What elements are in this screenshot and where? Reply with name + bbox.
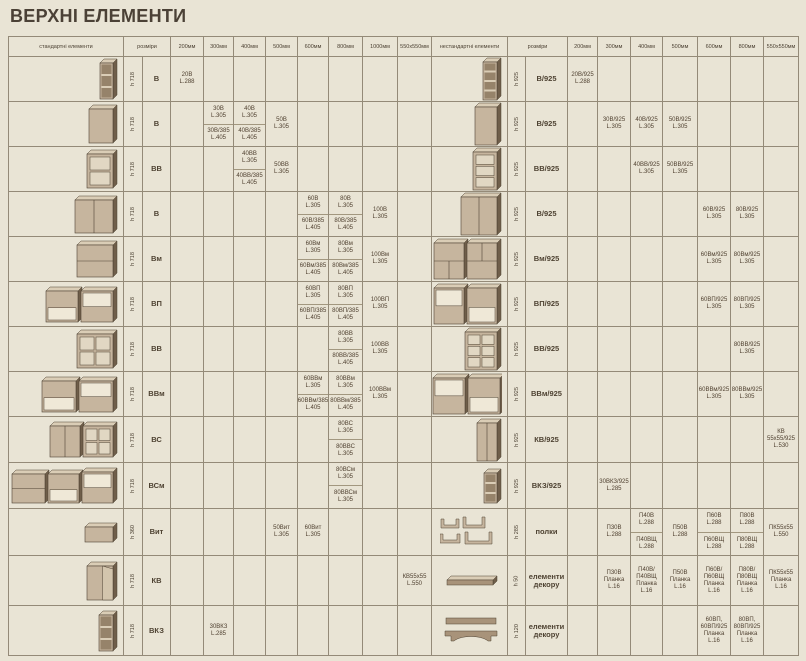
glass-6-tall-illustration — [464, 327, 502, 371]
col-header-nonstandard-elements: нестандартні елементи — [432, 37, 508, 57]
illustration-cell — [432, 372, 508, 417]
value-cell — [171, 372, 204, 417]
element-code: КВ — [143, 556, 171, 606]
value-cell — [631, 372, 663, 417]
value-cell — [298, 327, 329, 372]
value-cell: 60ВмL.30560Вм/385L.405 — [298, 237, 329, 282]
value-cell — [764, 192, 799, 237]
value-entry: П50ВПланкаL.16 — [663, 556, 697, 605]
value-cell: 60ВВм/925L.305 — [698, 372, 731, 417]
value-entry: П80ВЩL.288 — [731, 532, 763, 556]
corner-illustration — [86, 561, 118, 601]
value-cell — [568, 463, 598, 509]
illustration-cell — [9, 147, 124, 192]
element-code: ВСм — [143, 463, 171, 509]
col-header-right-600мм: 600мм — [698, 37, 731, 57]
element-code: ВКЗ/925 — [526, 463, 568, 509]
value-entry: 40ВВ/385L.405 — [234, 169, 265, 192]
value-entry: 20ВL.288 — [171, 57, 203, 101]
illustration-cell — [9, 192, 124, 237]
value-entry: 60ВП/385L.405 — [298, 304, 328, 327]
value-cell — [731, 463, 764, 509]
height-label: h 925 — [508, 237, 526, 282]
value-cell: 30ВL.30530В/385L.405 — [204, 102, 234, 147]
col-header-left-600мм: 600мм — [298, 37, 329, 57]
value-cell: 50ВВL.305 — [266, 147, 298, 192]
value-cell — [764, 147, 799, 192]
illustration-cell — [9, 372, 124, 417]
value-cell: 100ВL.305 — [363, 192, 398, 237]
shelf-set-illustration — [440, 515, 502, 549]
value-cell — [171, 509, 204, 556]
value-cell — [329, 509, 363, 556]
value-entry: 60ВмL.305 — [298, 237, 328, 259]
element-code: В — [143, 192, 171, 237]
value-entry: 60Вм/925L.305 — [698, 237, 730, 281]
illustration-cell — [9, 556, 124, 606]
value-entry: 30ВКЗ/925L.285 — [598, 463, 630, 508]
niche-flap-pair-illustration — [41, 376, 118, 413]
value-cell: 40ВL.30540В/385L.405 — [234, 102, 266, 147]
value-cell — [764, 102, 799, 147]
col-header-left-500мм: 500мм — [266, 37, 298, 57]
glass-4-illustration — [76, 329, 118, 369]
catalog-row: h 718ВВ80ВВL.30580ВВ/385L.405100ВВL.305h… — [9, 327, 799, 372]
value-cell — [698, 327, 731, 372]
value-entry: 80ВмL.305 — [329, 237, 362, 259]
value-cell — [568, 327, 598, 372]
value-entry: 30В/925L.305 — [598, 102, 630, 146]
value-cell — [298, 102, 329, 147]
value-cell — [631, 463, 663, 509]
shelf-3-illustration — [99, 58, 118, 100]
value-cell — [398, 57, 432, 102]
height-label: h 718 — [124, 282, 143, 327]
value-cell — [171, 463, 204, 509]
value-entry: 80ВВL.305 — [329, 327, 362, 349]
value-cell: П80ВL.288П80ВЩL.288 — [731, 509, 764, 556]
value-cell — [598, 417, 631, 463]
niche-flap-pair-tall-illustration — [432, 373, 502, 415]
value-entry: П40ВЩL.288 — [631, 532, 662, 556]
value-entry: П30ВПланкаL.16 — [598, 556, 630, 605]
value-cell: 80ВмL.30580Вм/385L.405 — [329, 237, 363, 282]
value-cell — [663, 417, 698, 463]
value-entry: 80ВВм/925L.305 — [731, 372, 763, 416]
value-cell: 40В/925L.305 — [631, 102, 663, 147]
illustration-cell — [9, 57, 124, 102]
height-label: h 925 — [508, 192, 526, 237]
catalog-row: h 718ВВ40ВВL.30540ВВ/385L.40550ВВL.305h … — [9, 147, 799, 192]
value-entry: 20В/925L.288 — [568, 57, 597, 101]
element-code: ВП/925 — [526, 282, 568, 327]
value-entry: П50ВL.288 — [663, 509, 697, 555]
height-label: h 718 — [124, 463, 143, 509]
value-cell — [568, 556, 598, 606]
value-entry: П40В/П40ВЩПланкаL.16 — [631, 556, 662, 605]
value-entry: КВ55х55L.550 — [398, 556, 431, 605]
value-entry: 60Вм/385L.405 — [298, 259, 328, 282]
value-cell — [631, 606, 663, 656]
value-cell — [568, 192, 598, 237]
value-entry: П60ВL.288 — [698, 509, 730, 532]
illustration-cell — [432, 102, 508, 147]
value-cell — [204, 327, 234, 372]
value-entry: 80ВВм/385L.405 — [329, 394, 362, 417]
value-cell — [234, 282, 266, 327]
value-cell — [598, 606, 631, 656]
value-cell — [171, 147, 204, 192]
value-cell — [663, 463, 698, 509]
catalog-row: h 718ВКЗ30ВКЗL.285h 120елементи декору60… — [9, 606, 799, 656]
value-cell — [266, 327, 298, 372]
value-cell — [204, 463, 234, 509]
element-code: елементи декору — [526, 606, 568, 656]
value-cell — [398, 147, 432, 192]
value-entry: 60ВП,60ВП/925ПланкаL.16 — [698, 606, 730, 655]
height-label: h 120 — [508, 606, 526, 656]
value-cell: 80ВВ/925L.305 — [731, 327, 764, 372]
value-cell: ПК55х55ПланкаL.16 — [764, 556, 799, 606]
value-entry: 100ВL.305 — [363, 192, 397, 236]
value-cell — [204, 192, 234, 237]
value-cell: КВ55х55L.550 — [398, 556, 432, 606]
value-entry: 100ВВL.305 — [363, 327, 397, 371]
value-cell — [234, 327, 266, 372]
value-cell — [266, 282, 298, 327]
door-2-tall-illustration — [460, 192, 502, 236]
value-cell: 60Вм/925L.305 — [698, 237, 731, 282]
element-code: ВС — [143, 417, 171, 463]
element-code: В/925 — [526, 192, 568, 237]
value-entry: 80Вм/385L.405 — [329, 259, 362, 282]
height-label: h 718 — [124, 102, 143, 147]
value-cell — [568, 147, 598, 192]
value-cell — [631, 57, 663, 102]
catalog-row: h 360Вит50ВитL.30560ВитL.305h 285полкиП3… — [9, 509, 799, 556]
catalog-row: h 718В30ВL.30530В/385L.40540ВL.30540В/38… — [9, 102, 799, 147]
value-cell — [363, 147, 398, 192]
value-cell — [298, 556, 329, 606]
illustration-cell — [9, 237, 124, 282]
col-header-left-400мм: 400мм — [234, 37, 266, 57]
col-header-left-1000мм: 1000мм — [363, 37, 398, 57]
value-cell — [298, 417, 329, 463]
catalog-row: h 718В20ВL.288h 925В/92520В/925L.288 — [9, 57, 799, 102]
value-cell — [204, 147, 234, 192]
element-code: ВВ — [143, 147, 171, 192]
element-code: ВВ/925 — [526, 147, 568, 192]
col-header-sizes-left: розміри — [124, 37, 171, 57]
value-cell — [363, 606, 398, 656]
illustration-cell — [432, 147, 508, 192]
element-code: ВВ — [143, 327, 171, 372]
illustration-cell — [9, 282, 124, 327]
triple-combo-illustration — [11, 467, 118, 504]
value-entry: 60ВВмL.305 — [298, 372, 328, 394]
value-cell: П40ВL.288П40ВЩL.288 — [631, 509, 663, 556]
value-entry: 50ВВL.305 — [266, 147, 297, 191]
height-label: h 718 — [124, 57, 143, 102]
height-label: h 925 — [508, 327, 526, 372]
value-cell — [764, 463, 799, 509]
value-cell — [398, 417, 432, 463]
value-cell: 60ВП/925L.305 — [698, 282, 731, 327]
illustration-cell — [432, 327, 508, 372]
height-label: h 50 — [508, 556, 526, 606]
height-label: h 925 — [508, 147, 526, 192]
value-entry: 40ВВ/925L.305 — [631, 147, 662, 191]
value-cell — [266, 606, 298, 656]
value-cell: 100ВВмL.305 — [363, 372, 398, 417]
value-entry: П80ВL.288 — [731, 509, 763, 532]
value-cell — [363, 57, 398, 102]
value-cell — [398, 509, 432, 556]
illustration-cell — [432, 606, 508, 656]
value-cell: П30ВL.288 — [598, 509, 631, 556]
value-cell — [764, 372, 799, 417]
height-label: h 285 — [508, 509, 526, 556]
value-cell — [266, 417, 298, 463]
value-entry: П40ВL.288 — [631, 509, 662, 532]
value-entry: 80ВВ/385L.405 — [329, 349, 362, 372]
value-cell: 40ВВL.30540ВВ/385L.405 — [234, 147, 266, 192]
value-entry: 60ВПL.305 — [298, 282, 328, 304]
value-cell — [731, 417, 764, 463]
door-1-illustration — [88, 104, 118, 144]
value-entry: П30ВL.288 — [598, 509, 630, 555]
value-cell — [398, 192, 432, 237]
value-entry: 80ВП,80ВП/925ПланкаL.16 — [731, 606, 763, 655]
illustration-cell — [9, 417, 124, 463]
door-glass-pair-illustration — [49, 421, 118, 458]
value-cell: 80ВВм/925L.305 — [731, 372, 764, 417]
value-cell — [234, 463, 266, 509]
value-cell — [598, 57, 631, 102]
value-cell: 80ВL.30580В/385L.405 — [329, 192, 363, 237]
element-code: В/925 — [526, 57, 568, 102]
value-entry: 80ВВмL.305 — [329, 372, 362, 394]
value-cell — [598, 237, 631, 282]
value-cell — [363, 102, 398, 147]
element-code: В — [143, 57, 171, 102]
value-cell — [631, 327, 663, 372]
value-cell — [764, 327, 799, 372]
col-header-left-550х550мм: 550х550мм — [398, 37, 432, 57]
element-code: КВ/925 — [526, 417, 568, 463]
value-cell — [568, 102, 598, 147]
value-cell — [171, 606, 204, 656]
value-cell — [764, 606, 799, 656]
value-cell: 100ВПL.305 — [363, 282, 398, 327]
value-cell — [631, 237, 663, 282]
value-cell: 60ВВмL.30560ВВм/385L.405 — [298, 372, 329, 417]
value-entry: 100ВмL.305 — [363, 237, 397, 281]
illustration-cell — [432, 509, 508, 556]
catalog-row: h 718КВКВ55х55L.550h 50елементи декоруП3… — [9, 556, 799, 606]
value-cell: 50ВВ/925L.305 — [663, 147, 698, 192]
value-cell: П50ВL.288 — [663, 509, 698, 556]
value-entry: 60ВП/925L.305 — [698, 282, 730, 326]
value-cell — [266, 57, 298, 102]
value-cell — [398, 372, 432, 417]
value-cell: 80В/925L.305 — [731, 192, 764, 237]
value-cell — [204, 282, 234, 327]
value-entry: ПК55х55ПланкаL.16 — [764, 556, 798, 605]
value-cell: П30ВПланкаL.16 — [598, 556, 631, 606]
value-entry: 80ВП/925L.305 — [731, 282, 763, 326]
value-entry: 60ВитL.305 — [298, 509, 328, 555]
catalog-row: h 718В60ВL.30560В/385L.40580ВL.30580В/38… — [9, 192, 799, 237]
value-cell: 80ВВL.30580ВВ/385L.405 — [329, 327, 363, 372]
value-cell — [266, 463, 298, 509]
value-cell — [764, 57, 799, 102]
flap-pair-tall-illustration — [433, 238, 502, 280]
value-cell — [266, 556, 298, 606]
value-cell: КВ55х55/925L.530 — [764, 417, 799, 463]
value-cell — [204, 372, 234, 417]
glass-2-illustration — [86, 149, 118, 189]
value-cell — [204, 57, 234, 102]
value-cell — [234, 509, 266, 556]
value-cell — [663, 57, 698, 102]
value-cell: 80ВПL.30580ВП/385L.405 — [329, 282, 363, 327]
value-cell: П50ВПланкаL.16 — [663, 556, 698, 606]
illustration-cell — [9, 102, 124, 147]
value-cell — [398, 463, 432, 509]
col-header-right-400мм: 400мм — [631, 37, 663, 57]
illustration-cell — [9, 327, 124, 372]
element-code: елементи декору — [526, 556, 568, 606]
cornice-pair-illustration — [444, 615, 502, 647]
value-cell — [204, 556, 234, 606]
height-label: h 718 — [124, 237, 143, 282]
element-code: В/925 — [526, 102, 568, 147]
value-cell — [731, 147, 764, 192]
value-cell: 60ВL.30560В/385L.405 — [298, 192, 329, 237]
value-entry: 80Вм/925L.305 — [731, 237, 763, 281]
value-cell — [329, 147, 363, 192]
illustration-cell — [432, 463, 508, 509]
height-label: h 925 — [508, 57, 526, 102]
value-cell — [631, 192, 663, 237]
value-cell — [663, 282, 698, 327]
value-entry: 80ВПL.305 — [329, 282, 362, 304]
value-entry: П80В/П80ВЩПланкаL.16 — [731, 556, 763, 605]
value-cell — [698, 57, 731, 102]
value-cell — [234, 192, 266, 237]
value-entry: 80ВП/385L.405 — [329, 304, 362, 327]
value-cell: П40В/П40ВЩПланкаL.16 — [631, 556, 663, 606]
value-cell — [568, 237, 598, 282]
value-cell — [171, 102, 204, 147]
door-1-tall-illustration — [474, 102, 502, 146]
value-cell — [204, 509, 234, 556]
value-cell — [398, 606, 432, 656]
value-cell — [731, 102, 764, 147]
value-cell: 80ВВмL.30580ВВм/385L.405 — [329, 372, 363, 417]
value-cell — [568, 372, 598, 417]
value-cell — [171, 327, 204, 372]
height-label: h 718 — [124, 417, 143, 463]
element-code: ВП — [143, 282, 171, 327]
value-cell — [363, 417, 398, 463]
element-code: Вм/925 — [526, 237, 568, 282]
value-cell: 50В/925L.305 — [663, 102, 698, 147]
value-cell — [631, 417, 663, 463]
value-cell — [568, 417, 598, 463]
value-cell: П60В/П60ВЩПланкаL.16 — [698, 556, 731, 606]
height-label: h 718 — [124, 372, 143, 417]
element-code: В — [143, 102, 171, 147]
value-cell — [298, 463, 329, 509]
value-cell — [698, 102, 731, 147]
height-label: h 925 — [508, 463, 526, 509]
value-entry: 40ВL.305 — [234, 102, 265, 124]
col-header-right-300мм: 300мм — [598, 37, 631, 57]
value-cell — [204, 237, 234, 282]
col-header-left-300мм: 300мм — [204, 37, 234, 57]
niche-pair-tall-illustration — [433, 283, 502, 325]
value-cell — [663, 237, 698, 282]
value-cell — [171, 556, 204, 606]
col-header-right-550х550мм: 550х550мм — [764, 37, 799, 57]
value-cell: П80В/П80ВЩПланкаL.16 — [731, 556, 764, 606]
illustration-cell — [9, 509, 124, 556]
catalog-table: стандартні елементирозміри200мм300мм400м… — [8, 36, 799, 656]
illustration-cell — [9, 606, 124, 656]
col-header-right-500мм: 500мм — [663, 37, 698, 57]
element-code: ВВ/925 — [526, 327, 568, 372]
value-cell — [171, 237, 204, 282]
value-entry: 80ВВ/925L.305 — [731, 327, 763, 371]
height-label: h 925 — [508, 372, 526, 417]
value-cell — [663, 606, 698, 656]
value-cell — [171, 192, 204, 237]
value-cell: 100ВмL.305 — [363, 237, 398, 282]
value-cell: 80ВП,80ВП/925ПланкаL.16 — [731, 606, 764, 656]
value-cell — [598, 192, 631, 237]
height-label: h 718 — [124, 556, 143, 606]
col-header-sizes-right: розміри — [508, 37, 568, 57]
value-cell: 30ВКЗL.285 — [204, 606, 234, 656]
element-code: ВВм — [143, 372, 171, 417]
value-cell — [329, 57, 363, 102]
value-entry: 80ВСL.305 — [329, 417, 362, 439]
value-cell — [764, 237, 799, 282]
value-entry: 80ВВСмL.305 — [329, 485, 362, 508]
illustration-cell — [432, 237, 508, 282]
value-cell: 60ВПL.30560ВП/385L.405 — [298, 282, 329, 327]
value-cell — [663, 327, 698, 372]
height-label: h 718 — [124, 147, 143, 192]
value-entry: 40ВВL.305 — [234, 147, 265, 169]
value-entry: 80ВL.305 — [329, 192, 362, 214]
height-label: h 925 — [508, 417, 526, 463]
illustration-cell — [432, 192, 508, 237]
value-cell — [398, 327, 432, 372]
value-entry: 80ВСмL.305 — [329, 463, 362, 485]
value-entry: 80В/385L.405 — [329, 214, 362, 237]
value-cell — [398, 282, 432, 327]
element-code: Вм — [143, 237, 171, 282]
flap-illustration — [76, 240, 118, 278]
element-code: Вит — [143, 509, 171, 556]
value-cell: 60В/925L.305 — [698, 192, 731, 237]
value-cell: 40ВВ/925L.305 — [631, 147, 663, 192]
value-entry: 100ВПL.305 — [363, 282, 397, 326]
value-cell — [266, 237, 298, 282]
